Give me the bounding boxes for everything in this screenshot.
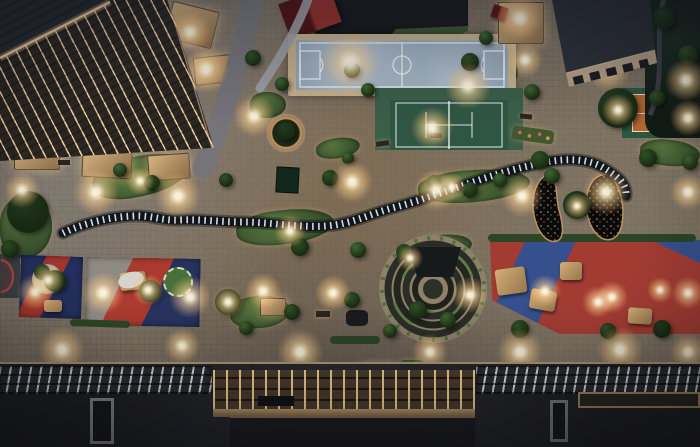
highlights-layer [0,0,700,447]
roof-edge-light [0,2,110,58]
facade-corner-light [168,0,212,148]
aerial-plaza-render [0,0,700,447]
building-top-right [552,0,657,87]
